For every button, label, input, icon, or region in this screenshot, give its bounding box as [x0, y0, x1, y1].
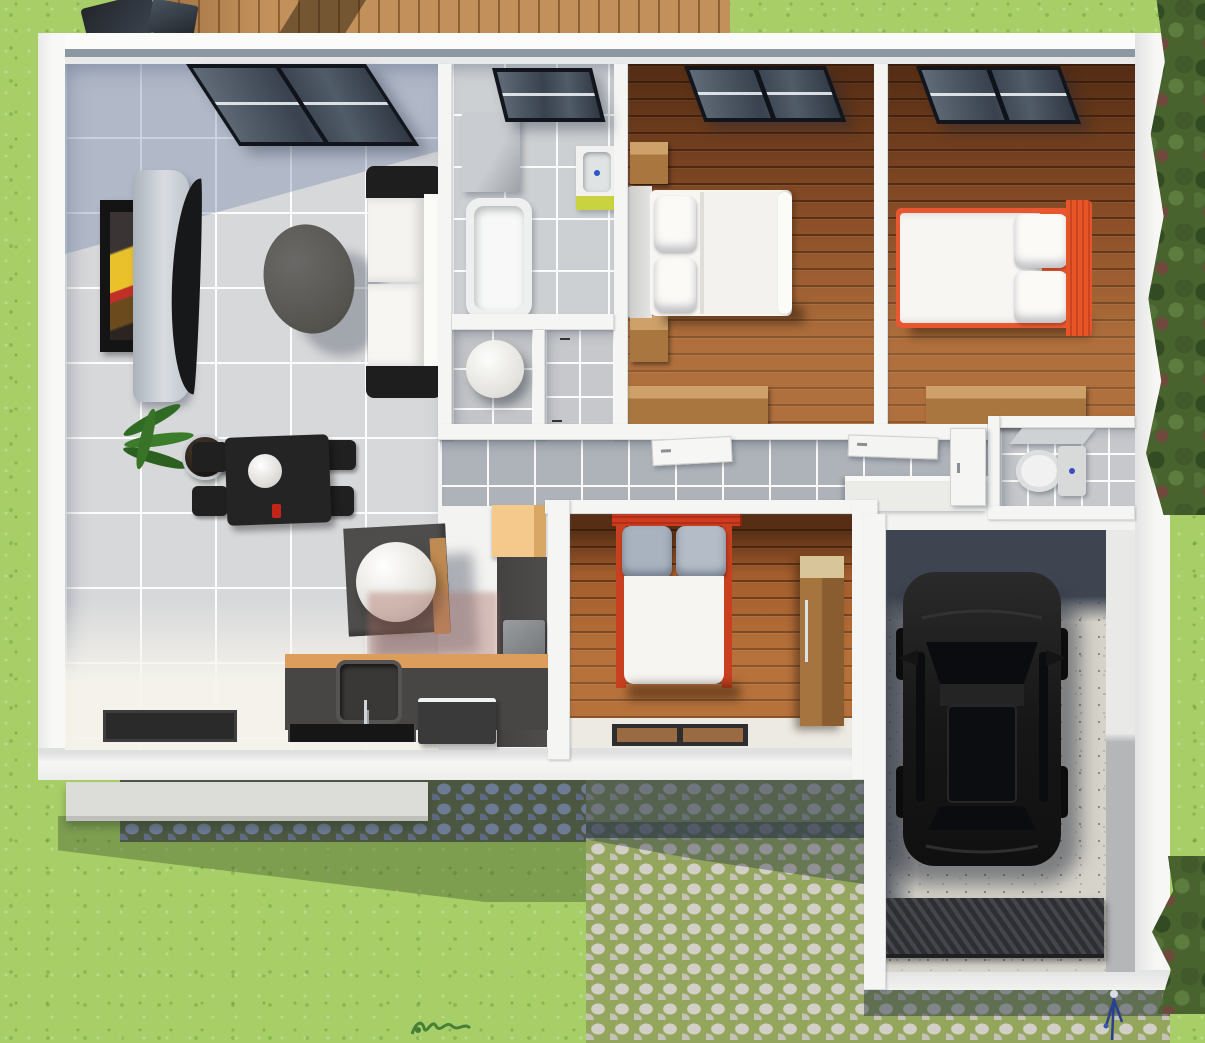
wall-bedroom3-west: [548, 500, 570, 760]
sofa-cushion-1: [368, 198, 426, 282]
toilet-tank: [1058, 446, 1086, 496]
kitchen-counter-top: [285, 654, 548, 668]
wall-bedroom1-bedroom2: [874, 64, 888, 428]
door-handle: [857, 443, 867, 446]
window-glass: [689, 70, 840, 118]
sofa: [366, 166, 442, 398]
bedroom2-window: [916, 66, 1081, 124]
artist-watermark: [406, 1008, 484, 1043]
bedroom2-pillow: [1014, 271, 1068, 323]
car-windshield: [926, 642, 1038, 684]
car-side-window: [1039, 652, 1048, 802]
bedroom2-pillow: [1014, 214, 1068, 268]
bedroom1-nightstand-top: [630, 142, 668, 184]
bathtub-basin: [474, 206, 524, 310]
water-heater: [466, 340, 524, 398]
dining-chair: [192, 486, 228, 516]
door-handle: [957, 463, 960, 473]
window-glass: [497, 72, 600, 118]
open-door-bedroom2: [848, 434, 939, 459]
dishwasher: [418, 698, 496, 744]
wall-living-bathroom: [438, 64, 452, 440]
wall-bathroom-bedroom1: [614, 64, 628, 440]
toilet-flush-button: [1069, 468, 1075, 474]
open-door-wc: [950, 428, 986, 506]
floor-plan-scene: [0, 0, 1205, 1043]
car-sunroof: [948, 706, 1016, 802]
toilet-bowl: [1016, 450, 1062, 492]
bedroom3-pillow: [676, 526, 726, 578]
bedroom1-duvet-roll: [778, 192, 792, 314]
kitchen-counter-face: [285, 668, 548, 730]
bedroom3-door-mat: [612, 724, 748, 746]
wash-basin-drain: [594, 170, 600, 176]
wardrobe-top-shelf: [800, 556, 844, 578]
garage-right-wall-face: [1106, 530, 1135, 972]
wc-shelf: [1009, 428, 1096, 444]
shower-door-mark: [560, 338, 570, 340]
bedroom1-nightstand-bottom: [630, 316, 668, 362]
bathroom-storage-block: [462, 114, 520, 192]
tan-cabinet: [492, 505, 546, 557]
bedroom3-duvet: [624, 576, 724, 684]
wardrobe-handle: [805, 600, 808, 662]
left-outer-wall: [38, 33, 65, 780]
shower-door-mark-2: [552, 420, 562, 422]
wall-wc-south: [988, 506, 1135, 520]
wall-bathroom-closets: [452, 314, 614, 330]
open-door-bedroom1: [651, 436, 732, 466]
bathroom-skylight-window: [492, 68, 605, 122]
bedroom1-pillow: [654, 196, 696, 252]
kitchen-sink: [336, 660, 402, 724]
dining-red-object: [272, 504, 281, 518]
car-rear-window: [928, 806, 1036, 830]
bedroom3-bed-shadow: [628, 684, 740, 700]
mat-panel: [617, 728, 677, 742]
bathtub: [466, 198, 532, 318]
bedroom2-headboard: [1066, 200, 1092, 336]
wash-basin: [576, 146, 618, 210]
bottom-outer-wall: [38, 748, 880, 780]
garage-grate: [878, 898, 1104, 958]
wall-wc-north: [988, 416, 1135, 428]
mat-panel: [683, 728, 743, 742]
wall-wc-west: [988, 416, 1000, 518]
dining-set: [192, 432, 358, 538]
sofa-cushion-2: [368, 284, 426, 366]
door-handle: [661, 449, 671, 453]
sofa-armrest-bottom: [366, 366, 442, 398]
car-roof: [940, 684, 1024, 706]
bedroom1-dresser: [622, 386, 768, 428]
blue-flower: [1100, 986, 1128, 1042]
entry-step: [66, 782, 428, 821]
living-door-mat: [103, 710, 237, 742]
plant-leaf: [122, 443, 189, 473]
car-side-window: [916, 652, 925, 802]
wood-deck: [158, 0, 730, 33]
dining-chair: [192, 442, 228, 472]
bedroom1-pillow: [654, 258, 696, 312]
dining-centerpiece: [248, 454, 282, 488]
car: [896, 566, 1068, 872]
bedroom3-pillow: [622, 526, 672, 578]
cooktop: [288, 724, 416, 742]
wall-bedroom3-north: [545, 500, 875, 514]
wash-basin-cabinet-lime: [576, 196, 618, 210]
bedroom1-duvet: [700, 192, 784, 314]
top-outer-wall: [38, 33, 1170, 64]
window-glass: [921, 70, 1075, 120]
wall-garage-west: [864, 514, 886, 990]
wardrobe: [800, 556, 844, 726]
bedroom1-window: [684, 66, 846, 122]
bedroom1-headboard: [626, 186, 652, 318]
